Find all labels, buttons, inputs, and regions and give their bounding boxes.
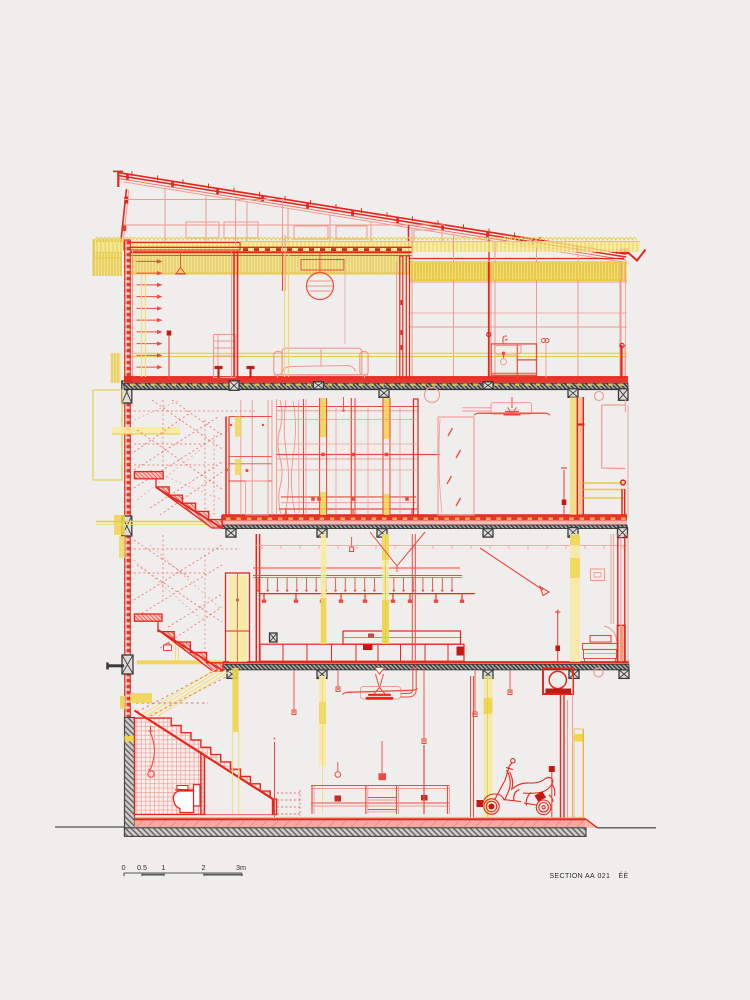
svg-text:3m: 3m — [236, 863, 246, 872]
svg-text:021: 021 — [598, 873, 611, 880]
svg-text:1: 1 — [162, 863, 166, 872]
svg-text:*: * — [273, 737, 276, 744]
svg-text:SECTION AA: SECTION AA — [550, 873, 596, 880]
svg-text:0.5: 0.5 — [137, 863, 147, 872]
svg-text:2: 2 — [202, 863, 206, 872]
svg-text:ÉÈ: ÉÈ — [619, 871, 629, 880]
svg-text:0: 0 — [122, 863, 126, 872]
